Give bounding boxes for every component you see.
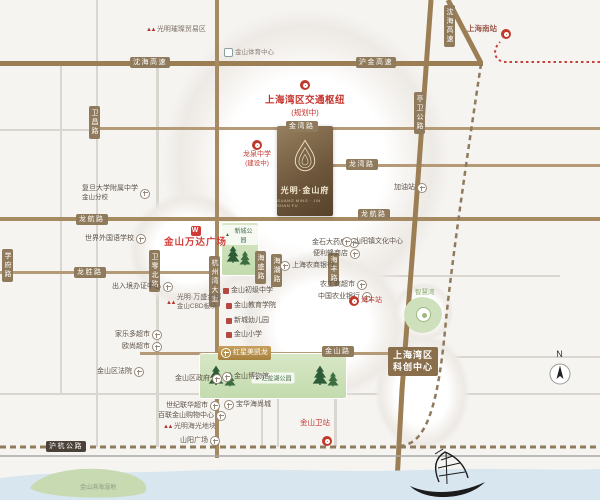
compass-icon [548,362,572,386]
dot-icon [224,48,233,57]
poi-label: 农工商超市 [320,281,355,289]
reddot-icon [226,332,232,338]
poi-label: 智慧湾 [415,289,435,297]
poi-label: 世界外国语学校 [85,235,134,243]
poi-hongxing-macalline: 红星美凯龙 [218,346,271,360]
cross-icon [210,401,220,411]
poi-label: 新城幼儿园 [234,317,269,325]
poi-shanyang-square: 山阳广场 [180,436,220,446]
poi-sublabel: 金山CBD板块 [177,303,221,311]
poi-label: 海丰站 [361,297,382,305]
cross-icon [224,400,234,410]
poi-label: 红星美凯龙 [233,349,268,357]
compass: N [544,344,576,391]
kechuang-center-badge: 上海湾区 科创中心 [388,347,438,376]
poi-jinshan-court: 金山区法院 [97,367,144,377]
poi-exit-entry-center: 出入境办证中心 [112,282,173,292]
poi-jinshan-junior-school: 金山初级中学 [223,287,273,295]
cross-icon [350,249,360,259]
poi-label: 欧尚超市 [122,343,150,351]
location-map: 新城公园 汇龙湖公园 上海湾区交通枢纽 (规划中) 光明·金山府 GUANG M… [0,0,600,500]
brand-logo-icon [146,27,155,33]
poi-jiale-market: 家乐多超市 [115,330,162,340]
poi-label: 复旦大学附属中学 [82,185,138,193]
cross-icon [152,342,162,352]
poi-label: 金山万达广场 [164,237,227,248]
poi-label: 金山教育学院 [234,302,276,310]
poi-jinshan-sports-center: 金山体育中心 [224,48,274,57]
poi-bailian-mall: 百联金山购物中心 [158,411,226,421]
poi-label: 世纪联华超市 [166,402,208,410]
cross-icon [216,411,226,421]
rail-icon [252,140,262,150]
poi-binhai-wetland-label: 金山滨海湿地 [80,485,116,492]
tree-icon [312,358,328,392]
poi-label: 金山滨海湿地 [80,485,116,492]
road-name-badge-13: 海盛路 [255,251,266,284]
poi-nonggongshang-market: 农工商超市 [320,280,367,290]
poi-shanghai-south-station-icon [501,29,513,39]
wanda-icon [191,226,201,236]
poi-convenience-store: 便利蜂商店 [313,249,360,259]
cross-icon [417,183,427,193]
road-name-badge-2: 沈海高速 [444,5,455,47]
cross-icon [210,436,220,446]
hub-title: 上海湾区交通枢纽 [250,92,360,106]
poi-sublabel: (建设中) [243,160,271,168]
reddot-icon [226,303,232,309]
road-name-badge-4: 卫昌路 [89,106,100,139]
poi-label: 龙泉中学 [243,151,271,159]
poi-gas-station: 加油站 [394,183,427,193]
reddot-icon [223,288,229,294]
road-name-badge-17: 沪杭公路 [46,441,86,452]
poi-zhihuiwan-label: 智慧湾 [415,289,435,297]
poi-haiguang-plot: 光明海光地块 [163,423,216,431]
cross-icon [140,189,150,199]
rail-icon [501,29,511,39]
road-name-badge-7: 龙航路 [76,214,108,225]
road-name-badge-0: 沈海高速 [130,57,170,68]
waterdrop-logo-icon [288,138,322,178]
poi-label: 上海农商银行 [292,262,334,270]
poi-label: 山阳广场 [180,437,208,445]
poi-wanda-plaza: 金山万达广场 [164,226,227,248]
poi-label: 金山区政府 [175,375,210,383]
poi-label: 上海南站 [467,24,497,33]
project-name: 光明·金山府 [281,185,330,196]
cross-icon [222,372,232,382]
road-name-badge-9: 龙胜路 [74,267,106,278]
rail-icon [322,436,332,446]
poi-label: 金山体育中心 [235,49,274,57]
tree-icon [327,366,339,392]
poi-jinshan-primary: 金山小学 [226,331,262,339]
poi-label: 加油站 [394,184,415,192]
poi-jinshan-museum: 金山博物馆 [222,372,269,382]
poi-label: 光明璀璨贸易区 [157,26,206,34]
poi-world-foreign-school: 世界外国语学校 [85,234,146,244]
cross-icon [152,330,162,340]
road-name-badge-16: 金山路 [322,346,354,357]
tree-icon [226,241,240,267]
poi-label: 金山区法院 [97,368,132,376]
rail-icon [349,296,359,306]
poi-label: 金山博物馆 [234,373,269,381]
road-tingwei-highway [396,0,431,500]
poi-label: 光明·万盛金邸 [177,294,221,302]
poi-label: 宝华海尚城 [236,401,271,409]
poi-label: 山阳镇文化中心 [354,238,403,246]
poi-fudan-affiliated: 复旦大学附属中学金山分校 [82,185,150,202]
project-card: 光明·金山府 GUANG MING · JIN SHAN FU [277,126,333,216]
poi-baohua-haishang: 宝华海尚城 [224,400,271,410]
brand-logo-icon [166,300,175,306]
reddot-icon [226,318,232,324]
poi-auchan-market: 欧尚超市 [122,342,162,352]
cross-icon [134,367,144,377]
poi-wansheng-jindi: 光明·万盛金邸金山CBD板块 [166,294,221,311]
road-name-badge-1: 沪金高速 [356,57,396,68]
cross-icon [221,348,231,358]
hub-subtitle: (规划中) [250,107,360,118]
poi-longquan-school: 龙泉中学(建设中) [243,140,271,168]
poi-shanghai-south-station: 上海南站 [467,24,497,33]
kechuang-line1: 上海湾区 [393,350,433,360]
road-name-badge-3: 亭卫公路 [414,92,425,134]
tree-icon [239,247,251,269]
cross-icon [163,282,173,292]
cross-icon [136,234,146,244]
brand-logo-icon [163,424,172,430]
road-name-badge-5: 金湾路 [286,121,318,132]
poi-jinshan-government: 金山区政府 [175,374,222,384]
poi-shiji-lianhua-market: 世纪联华超市 [166,401,220,411]
road-name-badge-6: 龙湾路 [346,159,378,170]
poi-guangming-cuican-logo: 光明璀璨贸易区 [146,26,206,34]
poi-jinshanwei-station-label: 金山卫站 [300,418,330,427]
road-name-badge-8: 龙航路 [358,209,390,220]
poi-label: 出入境办证中心 [112,283,161,291]
poi-sublabel: 金山分校 [82,194,138,202]
poi-label: 光明海光地块 [174,423,216,431]
transport-hub-label: 上海湾区交通枢纽 (规划中) [250,80,360,118]
poi-label: 金山小学 [234,331,262,339]
poi-shanyang-culture-center: 山阳镇文化中心 [342,237,403,247]
road-name-badge-10: 学府路 [2,249,13,282]
poi-haifeng-station: 海丰站 [349,296,382,306]
kechuang-line2: 科创中心 [393,362,433,372]
cross-icon [357,280,367,290]
poi-label: 家乐多超市 [115,331,150,339]
metro-dotted-line [495,42,600,62]
compass-n-label: N [556,349,564,359]
poi-label: 便利蜂商店 [313,250,348,258]
poi-jinshanwei-station-icon [322,436,334,446]
poi-jinshan-edu-college: 金山教育学院 [226,302,276,310]
poi-rural-commercial-bank: 上海农商银行 [280,261,334,271]
poi-xincheng-kindergarten: 新城幼儿园 [226,317,269,325]
cross-icon [342,237,352,247]
project-name-en: GUANG MING · JIN SHAN FU [277,198,333,208]
rail-icon [300,80,310,90]
cross-icon [280,261,290,271]
cross-icon [212,374,222,384]
poi-label: 金山卫站 [300,418,330,427]
poi-label: 金山初级中学 [231,287,273,295]
poi-label: 百联金山购物中心 [158,412,214,420]
